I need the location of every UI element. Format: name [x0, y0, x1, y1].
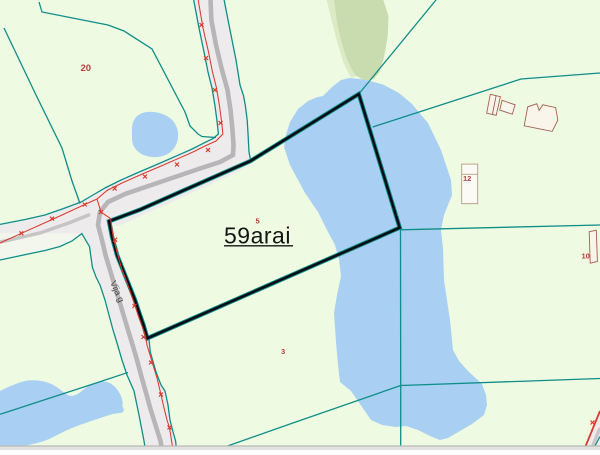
svg-text:20: 20: [81, 63, 92, 74]
svg-text:3: 3: [281, 347, 285, 356]
svg-text:59arai: 59arai: [224, 223, 291, 249]
svg-text:12: 12: [463, 174, 471, 183]
svg-text:10: 10: [582, 252, 590, 261]
